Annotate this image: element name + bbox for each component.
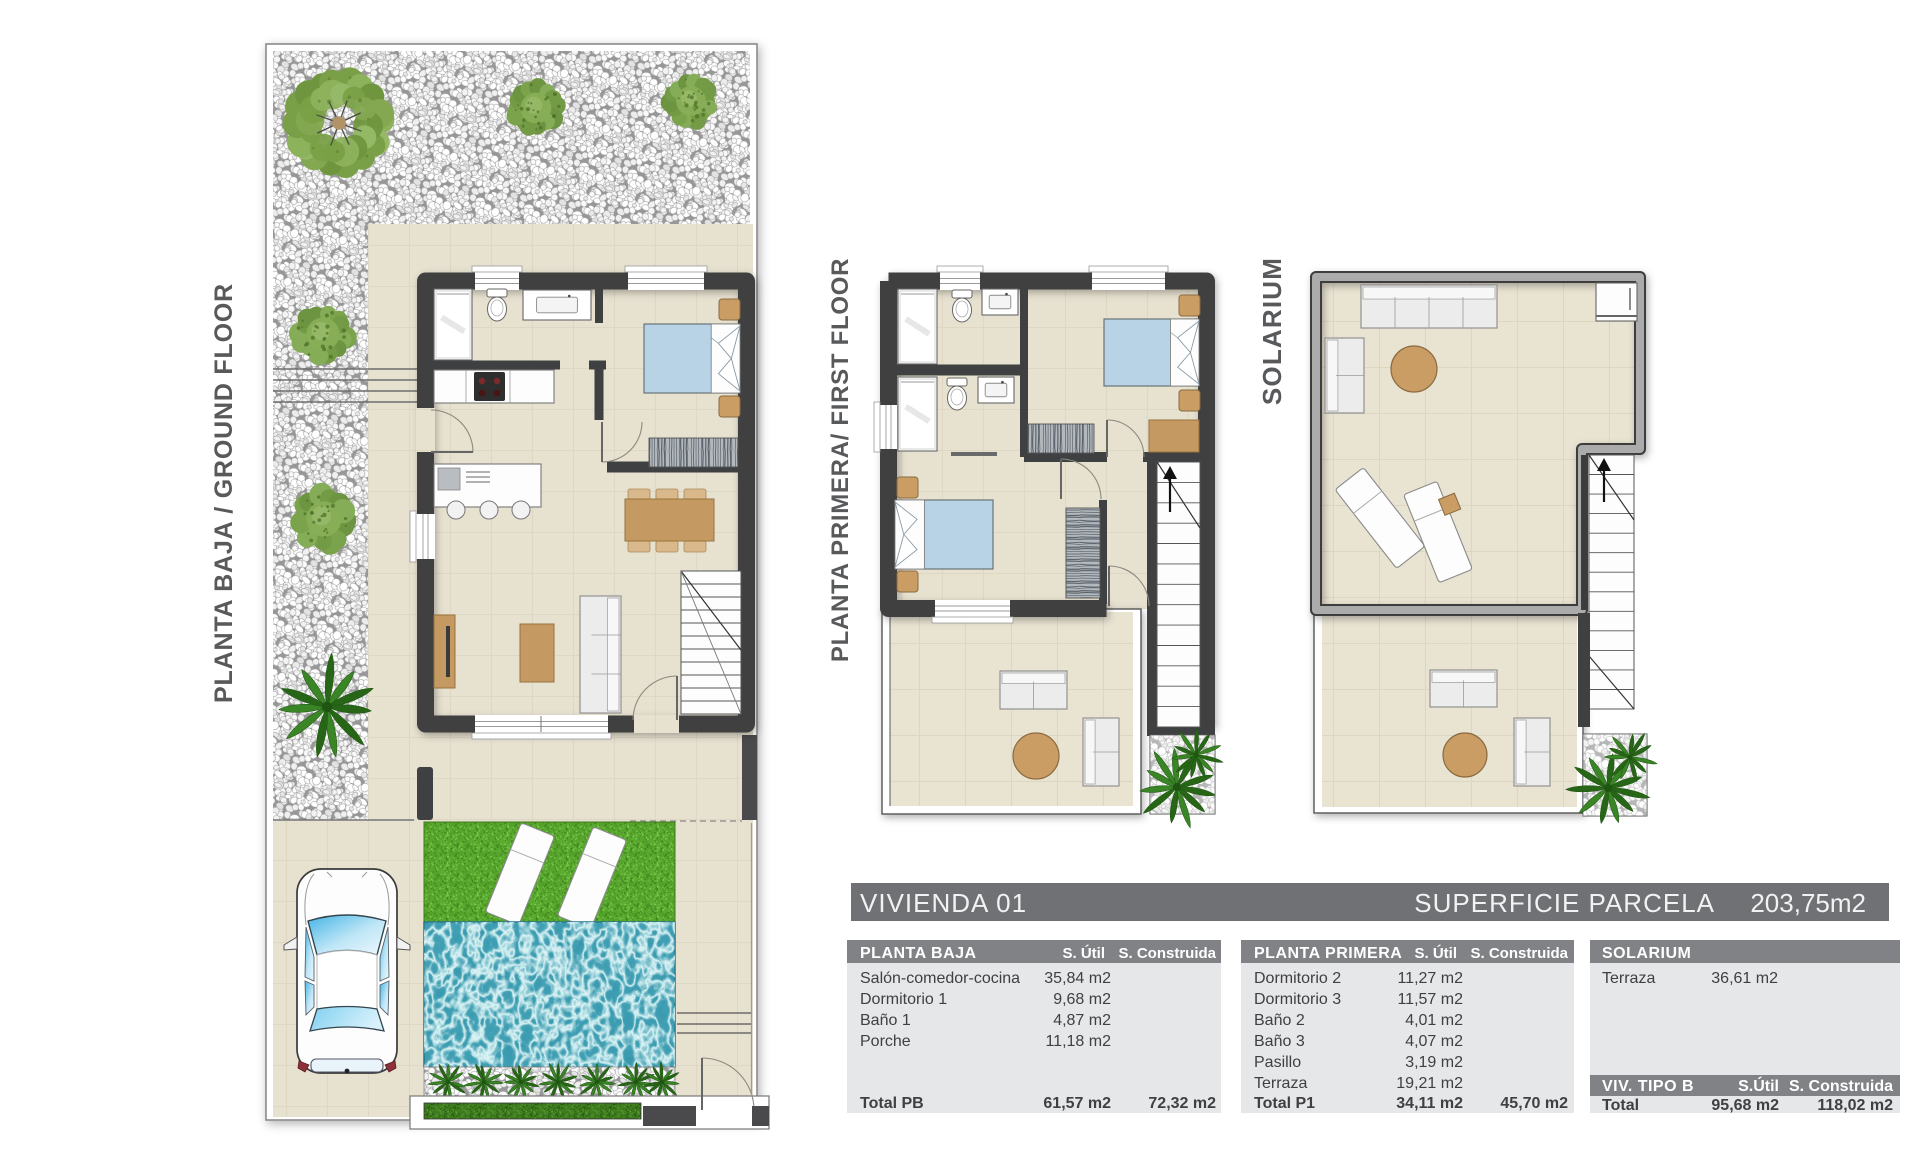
svg-text:PLANTA PRIMERA: PLANTA PRIMERA [1254,945,1402,962]
svg-text:45,70 m2: 45,70 m2 [1500,1095,1568,1112]
svg-text:19,21 m2: 19,21 m2 [1396,1075,1463,1092]
svg-text:11,18 m2: 11,18 m2 [1045,1033,1111,1050]
svg-text:VIVIENDA 01: VIVIENDA 01 [860,888,1027,918]
svg-text:PLANTA BAJA: PLANTA BAJA [860,945,977,962]
svg-text:SOLARIUM: SOLARIUM [1257,257,1287,405]
svg-text:Total P1: Total P1 [1254,1095,1315,1112]
svg-text:Dormitorio 2: Dormitorio 2 [1254,970,1341,987]
svg-text:61,57 m2: 61,57 m2 [1043,1095,1111,1112]
svg-text:Dormitorio 1: Dormitorio 1 [860,991,947,1008]
svg-text:S. Construida: S. Construida [1118,945,1216,962]
svg-text:72,32 m2: 72,32 m2 [1148,1095,1216,1112]
svg-text:Baño 1: Baño 1 [860,1012,911,1029]
svg-text:35,84 m2: 35,84 m2 [1044,970,1111,987]
svg-text:S. Construida: S. Construida [1470,945,1568,962]
svg-text:SUPERFICIE PARCELA: SUPERFICIE PARCELA [1414,888,1715,918]
svg-text:S. Construida: S. Construida [1789,1078,1893,1095]
svg-text:34,11 m2: 34,11 m2 [1396,1095,1463,1112]
svg-text:203,75m2: 203,75m2 [1750,888,1866,918]
svg-text:S. Útil: S. Útil [1062,944,1105,962]
svg-text:118,02 m2: 118,02 m2 [1817,1097,1893,1114]
svg-text:Total: Total [1602,1097,1639,1114]
svg-text:VIV. TIPO B: VIV. TIPO B [1602,1078,1694,1095]
svg-text:Pasillo: Pasillo [1254,1054,1301,1071]
svg-text:Total PB: Total PB [860,1095,924,1112]
svg-text:36,61 m2: 36,61 m2 [1711,970,1778,987]
svg-text:Salón-comedor-cocina: Salón-comedor-cocina [860,970,1020,987]
svg-text:4,07 m2: 4,07 m2 [1405,1033,1463,1050]
svg-text:4,01 m2: 4,01 m2 [1405,1012,1463,1029]
svg-text:Dormitorio 3: Dormitorio 3 [1254,991,1341,1008]
svg-text:3,19 m2: 3,19 m2 [1405,1054,1463,1071]
svg-text:11,57 m2: 11,57 m2 [1397,991,1463,1008]
svg-text:Porche: Porche [860,1033,911,1050]
svg-text:PLANTA PRIMERA/ FIRST FLOOR: PLANTA PRIMERA/ FIRST FLOOR [827,258,854,662]
svg-text:11,27 m2: 11,27 m2 [1397,970,1463,987]
svg-text:S.Útil: S.Útil [1738,1076,1779,1095]
svg-text:S. Útil: S. Útil [1414,944,1457,962]
svg-text:4,87 m2: 4,87 m2 [1053,1012,1111,1029]
svg-text:9,68 m2: 9,68 m2 [1053,991,1111,1008]
svg-text:SOLARIUM: SOLARIUM [1602,945,1691,962]
svg-text:Terraza: Terraza [1602,970,1655,987]
svg-text:Baño 2: Baño 2 [1254,1012,1305,1029]
svg-text:PLANTA BAJA / GROUND FLOOR: PLANTA BAJA / GROUND FLOOR [210,283,238,703]
svg-text:Baño 3: Baño 3 [1254,1033,1305,1050]
svg-text:Terraza: Terraza [1254,1075,1307,1092]
svg-text:95,68 m2: 95,68 m2 [1711,1097,1779,1114]
